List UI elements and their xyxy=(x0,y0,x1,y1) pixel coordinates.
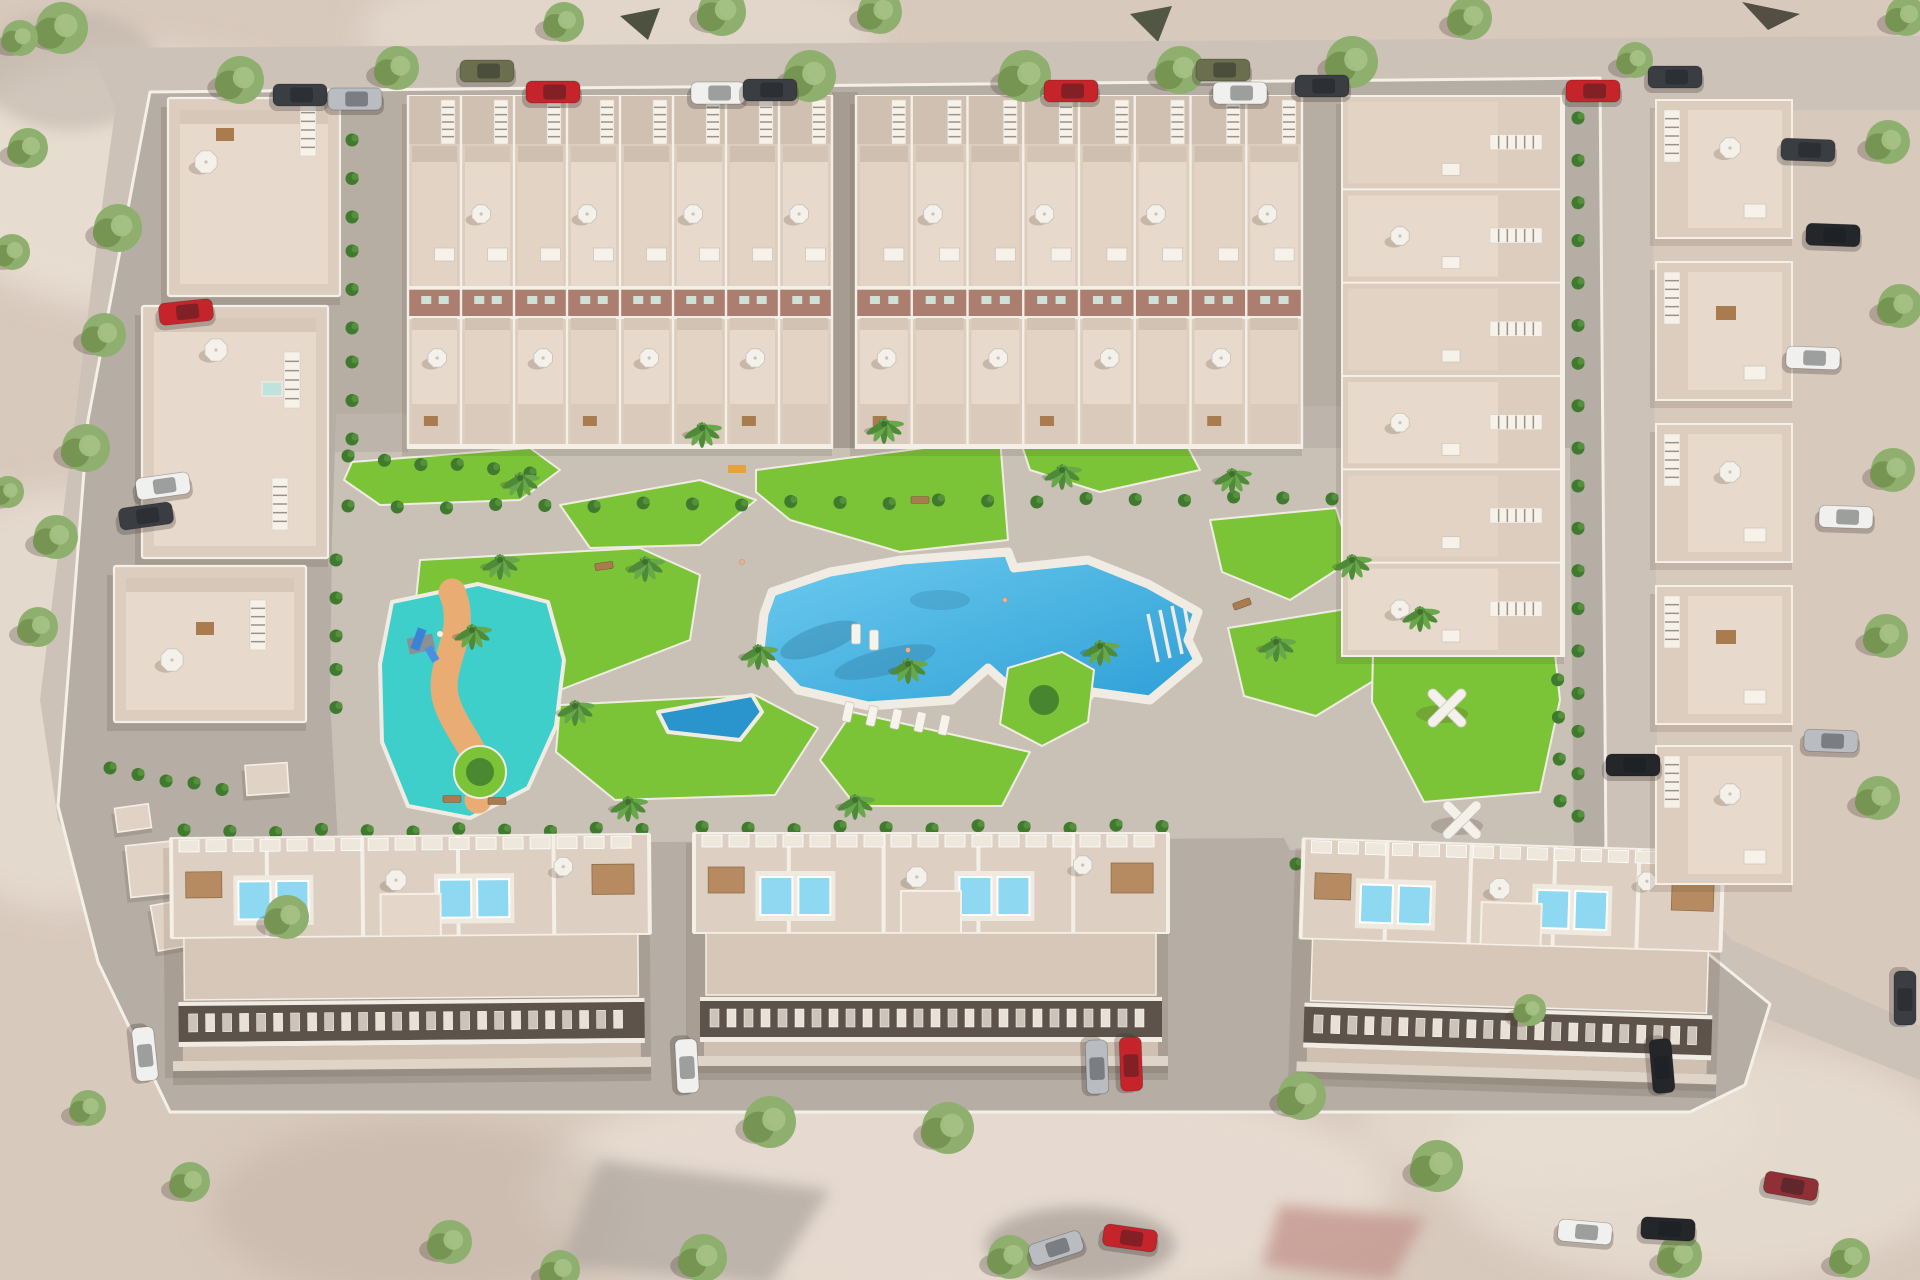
parked-car xyxy=(1636,1216,1697,1246)
tree-highlight xyxy=(1673,1244,1693,1264)
glass-balustrade xyxy=(1026,835,1046,847)
bush-highlight xyxy=(384,455,391,462)
glass-balustrade xyxy=(702,835,722,847)
facade-window xyxy=(342,1013,351,1031)
facade-window xyxy=(1033,1009,1042,1027)
wall-shadow xyxy=(412,146,457,162)
skylight xyxy=(1744,204,1766,218)
east-townhouse-column xyxy=(1336,96,1564,664)
wall-shadow xyxy=(518,146,563,162)
band-window xyxy=(474,296,484,304)
facade-window xyxy=(580,1010,589,1028)
rooftop-pool xyxy=(439,879,471,917)
facade-window xyxy=(1314,1015,1324,1033)
patio-table xyxy=(424,416,438,426)
bush-highlight xyxy=(138,769,145,776)
hedge-bush xyxy=(1276,492,1289,505)
bush-highlight xyxy=(275,827,282,834)
party-wall xyxy=(1071,833,1075,933)
glass-balustrade xyxy=(260,839,280,851)
neighboring-villas xyxy=(1650,100,1792,892)
skylight xyxy=(1442,443,1460,455)
bush-highlight xyxy=(194,778,201,785)
bush-highlight xyxy=(1233,492,1240,499)
parked-car xyxy=(1040,80,1100,107)
hedge-bush xyxy=(686,498,699,511)
bush-highlight xyxy=(504,825,511,832)
facade-window xyxy=(597,1010,606,1028)
umbrella-pole xyxy=(1154,212,1157,215)
tree-highlight xyxy=(1900,5,1918,23)
hedge-bush xyxy=(346,245,359,258)
band-window xyxy=(792,296,802,304)
bush-highlight xyxy=(692,499,699,506)
roof-terrace xyxy=(1250,318,1298,404)
north-townhouse-blocks xyxy=(402,96,1303,456)
hedge-bush xyxy=(1178,494,1191,507)
skylight xyxy=(1442,537,1460,549)
skylight xyxy=(806,248,826,261)
car-glass xyxy=(679,1056,695,1079)
bush-highlight xyxy=(1578,565,1585,572)
band-window xyxy=(651,296,661,304)
glass-balustrade xyxy=(972,835,992,847)
bush-highlight xyxy=(336,593,343,600)
roof-terrace xyxy=(1195,146,1243,286)
roof-terrace xyxy=(1027,318,1075,404)
umbrella-pole xyxy=(1398,421,1401,424)
party-wall xyxy=(778,96,780,448)
wall-shadow xyxy=(783,318,828,330)
car-glass xyxy=(1803,350,1826,366)
facade-window xyxy=(308,1013,317,1031)
parked-car xyxy=(1553,1218,1615,1250)
car-glass xyxy=(135,507,160,525)
band-window xyxy=(757,296,767,304)
hedge-bush xyxy=(1572,645,1585,658)
umbrella-pole xyxy=(1043,212,1046,215)
hedge-bush xyxy=(346,211,359,224)
glass-balustrade xyxy=(1134,835,1154,847)
tree-highlight xyxy=(1886,458,1906,478)
roof-terrace xyxy=(1688,596,1782,714)
party-wall xyxy=(1301,96,1303,448)
bush-highlight xyxy=(544,500,551,507)
bush-highlight xyxy=(352,135,359,142)
car-glass xyxy=(1230,86,1253,101)
umbrella-pole xyxy=(1398,608,1401,611)
umbrella-pole xyxy=(997,356,1000,359)
bush-highlight xyxy=(978,820,985,827)
tree-highlight xyxy=(696,1245,718,1267)
skylight xyxy=(1744,528,1766,542)
bush-highlight xyxy=(1578,523,1585,530)
hedge-bush xyxy=(342,500,355,513)
skylight xyxy=(594,248,614,261)
bush-highlight xyxy=(790,496,797,503)
glass-balustrade xyxy=(945,835,965,847)
umbrella-pole xyxy=(692,212,695,215)
apartment-building xyxy=(107,566,306,731)
bush-highlight xyxy=(420,459,427,466)
tree-highlight xyxy=(49,525,69,545)
umbrella-pole xyxy=(1108,356,1111,359)
party-wall xyxy=(1342,282,1564,284)
umbrella-pole xyxy=(1728,792,1731,795)
band-window xyxy=(633,296,643,304)
hedge-bush xyxy=(315,823,328,836)
roof-terrace xyxy=(1688,110,1782,228)
parked-car xyxy=(1801,223,1862,252)
facade-window xyxy=(1551,1022,1561,1040)
parked-car xyxy=(456,60,516,87)
glass-balustrade xyxy=(1311,841,1331,854)
party-wall xyxy=(1342,562,1564,564)
bush-highlight xyxy=(166,776,173,783)
villa xyxy=(1650,262,1792,408)
bush-highlight xyxy=(110,763,117,770)
hedge-bush xyxy=(1572,357,1585,370)
bush-highlight xyxy=(1578,603,1585,610)
roof-terrace xyxy=(730,146,775,286)
roof-terrace xyxy=(1139,318,1187,404)
facade-window xyxy=(189,1014,198,1032)
parked-car xyxy=(1562,80,1622,107)
bush-highlight xyxy=(352,212,359,219)
facade-window xyxy=(495,1011,504,1029)
hedge-bush xyxy=(342,450,355,463)
glass-balustrade xyxy=(1392,843,1412,856)
rooftop-pool xyxy=(760,877,792,915)
facade-window xyxy=(461,1011,470,1029)
bush-highlight xyxy=(1282,493,1289,500)
facade-window xyxy=(427,1012,436,1030)
bush-highlight xyxy=(987,496,994,503)
party-wall xyxy=(566,96,568,448)
umbrella-pole xyxy=(214,348,217,351)
facade-window xyxy=(1331,1015,1341,1033)
roof-terrace xyxy=(1688,434,1782,552)
roof-terrace xyxy=(1348,475,1498,556)
car-glass xyxy=(1312,79,1335,94)
bush-highlight xyxy=(352,395,359,402)
band-window xyxy=(1260,296,1270,304)
tree-highlight xyxy=(184,1171,202,1189)
tree-highlight xyxy=(111,215,133,237)
bush-highlight xyxy=(493,463,500,470)
car-glass xyxy=(1798,142,1821,158)
tree-highlight xyxy=(97,323,117,343)
umbrella-pole xyxy=(931,212,934,215)
hedge-bush xyxy=(330,663,343,676)
bush-highlight xyxy=(886,822,893,829)
hedge-bush xyxy=(346,394,359,407)
hedge-bush xyxy=(487,462,500,475)
person xyxy=(739,559,744,564)
hedge-bush xyxy=(346,134,359,147)
bush-highlight xyxy=(352,323,359,330)
roof-terrace xyxy=(1083,146,1131,286)
bush-highlight xyxy=(1036,497,1043,504)
tree-highlight xyxy=(1429,1152,1452,1175)
skylight xyxy=(1744,850,1766,864)
glass-balustrade xyxy=(584,836,604,848)
party-wall xyxy=(911,96,913,448)
hedge-bush xyxy=(104,762,117,775)
tree-highlight xyxy=(558,11,576,29)
glass-balustrade xyxy=(503,837,523,849)
parked-car xyxy=(1644,66,1704,93)
rear-patio xyxy=(1139,404,1187,444)
facade-window xyxy=(880,1009,889,1027)
skylight xyxy=(541,248,561,261)
glass-balustrade xyxy=(837,835,857,847)
hedge-bush xyxy=(1572,196,1585,209)
roof-terrace xyxy=(916,318,964,404)
roof-terrace xyxy=(1348,195,1498,276)
pool-island-plants xyxy=(1029,685,1059,715)
roof-terrace xyxy=(1348,102,1498,183)
tree-highlight xyxy=(802,62,825,85)
wall-shadow xyxy=(1139,146,1187,162)
villa xyxy=(1650,586,1792,732)
hedge-bush xyxy=(1030,496,1043,509)
rear-patio xyxy=(783,404,828,444)
bush-highlight xyxy=(222,784,229,791)
pool-shadow xyxy=(910,590,970,610)
glass-balustrade xyxy=(449,837,469,849)
roof-table xyxy=(1716,630,1736,644)
hedge-bush xyxy=(1572,112,1585,125)
glass-balustrade xyxy=(1446,845,1466,858)
party-wall xyxy=(1342,375,1564,377)
tree-highlight xyxy=(15,28,31,44)
parked-car xyxy=(1814,505,1875,534)
tree-highlight xyxy=(1463,6,1483,26)
facade-window xyxy=(274,1013,283,1031)
party-wall xyxy=(725,96,727,448)
palm-crown xyxy=(852,797,858,803)
car-glass xyxy=(708,86,731,101)
skylight xyxy=(1274,248,1294,261)
facade-window xyxy=(1687,1027,1697,1045)
bush-highlight xyxy=(348,451,355,458)
facade-window xyxy=(393,1012,402,1030)
parked-car xyxy=(687,82,747,109)
umbrella-pole xyxy=(1266,212,1269,215)
band-window xyxy=(870,296,880,304)
hedge-bush xyxy=(637,497,650,510)
hedge-bush xyxy=(883,497,896,510)
glass-balustrade xyxy=(557,837,577,849)
wall-shadow xyxy=(860,318,908,330)
glass-balustrade xyxy=(1419,844,1439,857)
glass-balustrade xyxy=(611,836,631,848)
hedge-bush xyxy=(440,502,453,515)
facade-window xyxy=(1084,1009,1093,1027)
wall-shadow xyxy=(571,318,616,330)
bush-highlight xyxy=(1184,495,1191,502)
townhouse-block xyxy=(402,96,833,456)
facade-window xyxy=(529,1011,538,1029)
hedge-bush xyxy=(1572,725,1585,738)
bush-highlight xyxy=(794,824,801,831)
umbrella-pole xyxy=(542,356,545,359)
bush-highlight xyxy=(352,284,359,291)
car-glass xyxy=(1061,84,1084,99)
bush-highlight xyxy=(336,631,343,638)
roof-table xyxy=(1716,306,1736,320)
parked-car xyxy=(522,81,582,108)
tree-highlight xyxy=(54,14,77,37)
tree-highlight xyxy=(1525,1001,1539,1015)
party-wall xyxy=(1134,96,1136,448)
band-window xyxy=(1279,296,1289,304)
bush-highlight xyxy=(1558,712,1565,719)
party-wall xyxy=(672,96,674,448)
south-apartment-blocks xyxy=(163,833,1726,1099)
wall-shadow xyxy=(1083,318,1131,330)
bush-highlight xyxy=(938,495,945,502)
bush-highlight xyxy=(352,173,359,180)
bush-highlight xyxy=(413,827,420,834)
bush-highlight xyxy=(446,503,453,510)
bush-highlight xyxy=(1559,754,1566,761)
palm-crown xyxy=(517,475,523,481)
sun-lounger xyxy=(870,630,879,650)
hedge-bush xyxy=(391,501,404,514)
facade-window xyxy=(1602,1024,1612,1042)
facade-window xyxy=(795,1009,804,1027)
tree-highlight xyxy=(79,435,101,457)
wall-shadow xyxy=(1195,318,1243,330)
band-window xyxy=(1000,296,1010,304)
parked-car xyxy=(1643,1034,1675,1096)
tree-highlight xyxy=(1881,130,1901,150)
hedge-bush xyxy=(1553,753,1566,766)
facade-window xyxy=(1433,1019,1443,1037)
band-window xyxy=(926,296,936,304)
facade-window xyxy=(1348,1016,1358,1034)
bush-highlight xyxy=(932,824,939,831)
facade-window xyxy=(223,1014,232,1032)
palm-crown xyxy=(1229,471,1235,477)
bush-highlight xyxy=(1578,443,1585,450)
wall-shadow xyxy=(624,318,669,330)
apartment-building xyxy=(161,98,340,305)
kids-island-plants xyxy=(466,758,494,786)
bush-highlight xyxy=(594,501,601,508)
car-glass xyxy=(152,477,177,495)
skylight xyxy=(995,248,1015,261)
roof-terrace xyxy=(677,318,722,404)
mid-roof xyxy=(706,933,1156,995)
bush-highlight xyxy=(1578,320,1585,327)
glass-balustrade xyxy=(314,839,334,851)
facade-window xyxy=(727,1009,736,1027)
hedge-bush xyxy=(452,822,465,835)
parked-car xyxy=(1209,82,1269,109)
tree-highlight xyxy=(762,1108,785,1131)
wall-shadow xyxy=(1027,318,1075,330)
rooftop-pool xyxy=(1360,884,1393,923)
umbrella-pole xyxy=(436,356,439,359)
palm-crown xyxy=(572,703,578,709)
facade-window xyxy=(1670,1026,1680,1044)
car-glass xyxy=(1658,1221,1681,1237)
wall-shadow xyxy=(126,578,294,592)
wall-shadow xyxy=(571,146,616,162)
facade-window xyxy=(965,1009,974,1027)
bench xyxy=(488,798,506,805)
bush-highlight xyxy=(596,823,603,830)
hedge-bush xyxy=(834,820,847,833)
wood-pergola xyxy=(1314,873,1351,900)
scene-canvas xyxy=(0,0,1920,1280)
facade-window xyxy=(1050,1009,1059,1027)
bush-highlight xyxy=(367,825,374,832)
facade-window xyxy=(444,1012,453,1030)
facade-window xyxy=(563,1011,572,1029)
party-wall xyxy=(831,96,833,448)
wall-shadow xyxy=(730,318,775,330)
hedge-bush xyxy=(361,824,374,837)
bush-highlight xyxy=(840,497,847,504)
glass-balustrade xyxy=(530,837,550,849)
roof-terrace xyxy=(518,146,563,286)
tree-highlight xyxy=(32,616,50,634)
hedge-bush xyxy=(1572,602,1585,615)
car-glass xyxy=(176,303,200,320)
tree-highlight xyxy=(940,1114,963,1137)
facade-window xyxy=(1101,1009,1110,1027)
rooftop-pool xyxy=(798,877,830,915)
band-window xyxy=(1223,296,1233,304)
umbrella-pole xyxy=(394,879,397,882)
skylight xyxy=(1051,248,1071,261)
umbrella-pole xyxy=(480,212,483,215)
party-wall xyxy=(1078,96,1080,448)
villa xyxy=(1650,746,1792,892)
bush-highlight xyxy=(642,824,649,831)
facade-window xyxy=(1416,1018,1426,1036)
facade-window xyxy=(359,1012,368,1030)
wall-shadow xyxy=(916,318,964,330)
car-glass xyxy=(1089,1057,1105,1080)
umbrella-pole xyxy=(1398,234,1401,237)
wall-shadow xyxy=(1139,318,1187,330)
hedge-bush xyxy=(538,499,551,512)
rooftop-pool xyxy=(1398,885,1431,924)
car-glass xyxy=(345,92,368,107)
roof-terrace xyxy=(624,146,669,286)
tree-highlight xyxy=(280,905,300,925)
palm-crown xyxy=(1417,609,1423,615)
south-block xyxy=(163,834,653,1085)
parked-car xyxy=(324,88,384,115)
bush-highlight xyxy=(1578,235,1585,242)
palm-crown xyxy=(755,647,761,653)
wall-shadow xyxy=(1083,146,1131,162)
bush-highlight xyxy=(321,824,328,831)
hedge-bush xyxy=(972,819,985,832)
bench xyxy=(911,497,929,504)
facade-window xyxy=(376,1012,385,1030)
glass-balustrade xyxy=(1365,842,1385,855)
wall-shadow xyxy=(972,318,1020,330)
band-window xyxy=(421,296,431,304)
parked-car xyxy=(1080,1036,1109,1097)
